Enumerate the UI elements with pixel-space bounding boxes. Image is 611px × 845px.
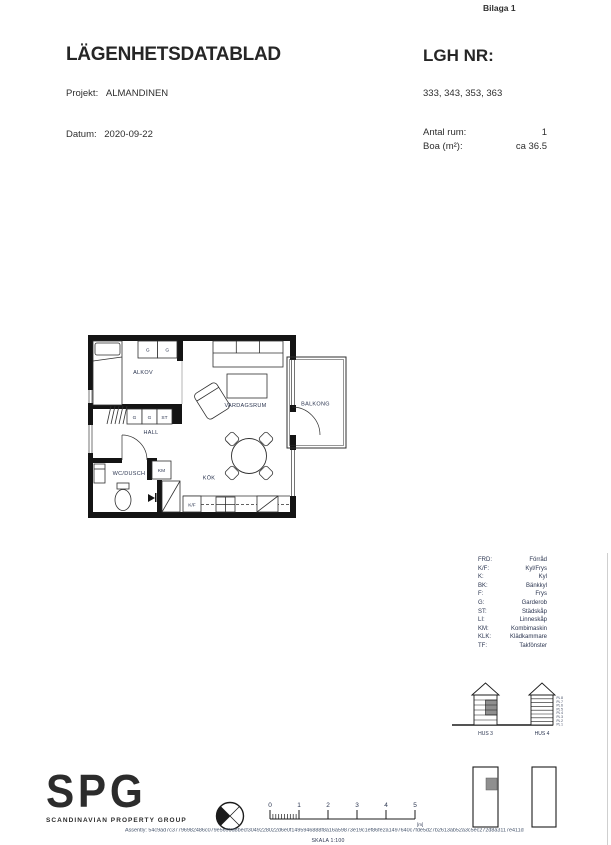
legend-abbr: LI: [478,616,485,625]
legend-name: Kombimaskin [511,625,547,634]
scale-and-north: 0 1 2 3 4 5 [m] SKALA 1:100 [200,795,430,845]
legend-abbr: K: [478,573,484,582]
hus4-footprint [532,767,556,827]
floorplan-drawing: G G G G ST KM [85,328,355,523]
room-label-hall: HALL [144,430,159,436]
legend-row: FRD:Förråd [478,556,547,565]
legend-name: Förråd [529,556,547,565]
scale-tick-label: 4 [384,802,388,809]
datum-label: Datum: [66,129,97,140]
page-edge-line [607,553,608,845]
antal-rum-value: 1 [542,126,547,140]
legend-name: Takfönster [519,642,547,651]
room-label-balkong: BALKONG [301,402,330,408]
north-arrow-icon [216,803,243,830]
legend-row: F:Frys [478,590,547,599]
scale-unit-label: [m] [417,822,423,827]
boa-label: Boa (m²): [423,140,463,154]
legend-row: G:Garderob [478,599,547,608]
legend-row: LI:Linneskåp [478,616,547,625]
legend-row: K:Kyl [478,573,547,582]
legend-abbr: K/F: [478,565,489,574]
kitchen-counter [183,496,290,512]
shower [148,481,180,512]
scale-tick-label: 2 [326,802,330,809]
boa-value: ca 36.5 [516,140,547,154]
datum-row: Datum: 2020-09-22 [66,129,153,140]
projekt-value: ALMANDINEN [106,88,168,99]
legend-abbr: G: [478,599,484,608]
legend-row: TF:Takfönster [478,642,547,651]
hus3-label: HUS 3 [478,731,493,737]
bathroom-sink [94,464,105,483]
legend-row: ST:Städskåp [478,608,547,617]
hus4-label: HUS 4 [535,731,550,737]
sofa [213,341,283,367]
floor-label: PL 1 [557,723,564,727]
hus4-roof [529,683,555,695]
cabinet-label: ST [161,415,167,421]
cabinet-label: G [146,348,150,354]
projekt-label: Projekt: [66,88,98,99]
legend-row: BK:Bänkkyl [478,582,547,591]
legend: FRD:Förråd K/F:Kyl/Frys K:Kyl BK:Bänkkyl… [478,556,547,651]
assently-signature: Assently: 54c9ad7c37796982486c079e5695d8… [125,828,524,833]
fridge-label: K/F [188,503,196,509]
bed [93,341,122,405]
scale-tick-label: 0 [268,802,272,809]
site-footprints [473,767,556,827]
room-label-vardagsrum: VARDAGSRUM [224,403,266,409]
legend-abbr: TF: [478,642,487,651]
scale-ratio-label: SKALA 1:100 [311,838,344,844]
antal-rum-row: Antal rum: 1 [423,126,547,140]
legend-name: Bänkkyl [526,582,547,591]
cabinet-label: G [165,348,169,354]
projekt-row: Projekt: ALMANDINEN [66,88,168,99]
logo-text: SPG [46,770,176,814]
apartment-location-marker [486,778,497,790]
legend-abbr: KM: [478,625,489,634]
scale-bar: 0 1 2 3 4 5 [m] SKALA 1:100 [268,802,423,844]
armchair [193,381,231,420]
hus3-footprint [473,767,498,827]
kitchen-sink [257,496,278,512]
room-label-alkov: ALKOV [133,370,153,376]
legend-name: Frys [535,590,547,599]
legend-abbr: FRD: [478,556,492,565]
cabinet-label: G [148,415,152,421]
hus3-roof [472,683,499,695]
building-diagrams: PL 8 PL 7 PL 6 PL 5 PL 4 PL 3 PL 2 PL 1 … [450,678,570,830]
room-label-wc: WC/DUSCH [113,471,146,477]
alkov-cabinets [138,341,177,358]
company-logo: SPG SCANDINAVIAN PROPERTY GROUP [46,770,187,824]
legend-name: Klädkammare [510,633,547,642]
lgh-numbers: 333, 343, 353, 363 [423,88,502,99]
legend-abbr: ST: [478,608,487,617]
datasheet-page: Bilaga 1 LÄGENHETSDATABLAD LGH NR: Proje… [0,0,611,845]
legend-name: Garderob [522,599,547,608]
coffee-table [227,374,267,398]
legend-row: KLK:Klädkammare [478,633,547,642]
boa-row: Boa (m²): ca 36.5 [423,140,547,154]
scale-tick-label: 3 [355,802,359,809]
floor-level-labels: PL 8 PL 7 PL 6 PL 5 PL 4 PL 3 PL 2 PL 1 [557,696,564,727]
scale-tick-label: 5 [413,802,417,809]
cabinet-label: G [133,415,137,421]
dining-table [232,439,267,474]
washer-label: KM [158,468,165,474]
hus4-elevation [529,683,555,725]
antal-rum-label: Antal rum: [423,126,466,140]
toilet [115,483,131,511]
legend-row: K/F:Kyl/Frys [478,565,547,574]
legend-row: KM:Kombimaskin [478,625,547,634]
datum-value: 2020-09-22 [104,129,153,140]
legend-name: Kyl/Frys [525,565,547,574]
room-label-kok: KÖK [203,475,216,482]
logo-subtext: SCANDINAVIAN PROPERTY GROUP [46,817,187,824]
lgh-nr-label: LGH NR: [423,46,494,66]
page-title: LÄGENHETSDATABLAD [66,44,281,66]
bilaga-label: Bilaga 1 [483,3,516,13]
stove [216,497,235,512]
legend-abbr: F: [478,590,483,599]
scale-tick-label: 1 [297,802,301,809]
hus3-elevation [472,683,499,725]
legend-abbr: BK: [478,582,488,591]
legend-name: Linneskåp [520,616,547,625]
legend-name: Städskåp [522,608,547,617]
legend-abbr: KLK: [478,633,491,642]
hus3-highlight-floors [486,700,498,715]
legend-name: Kyl [539,573,547,582]
